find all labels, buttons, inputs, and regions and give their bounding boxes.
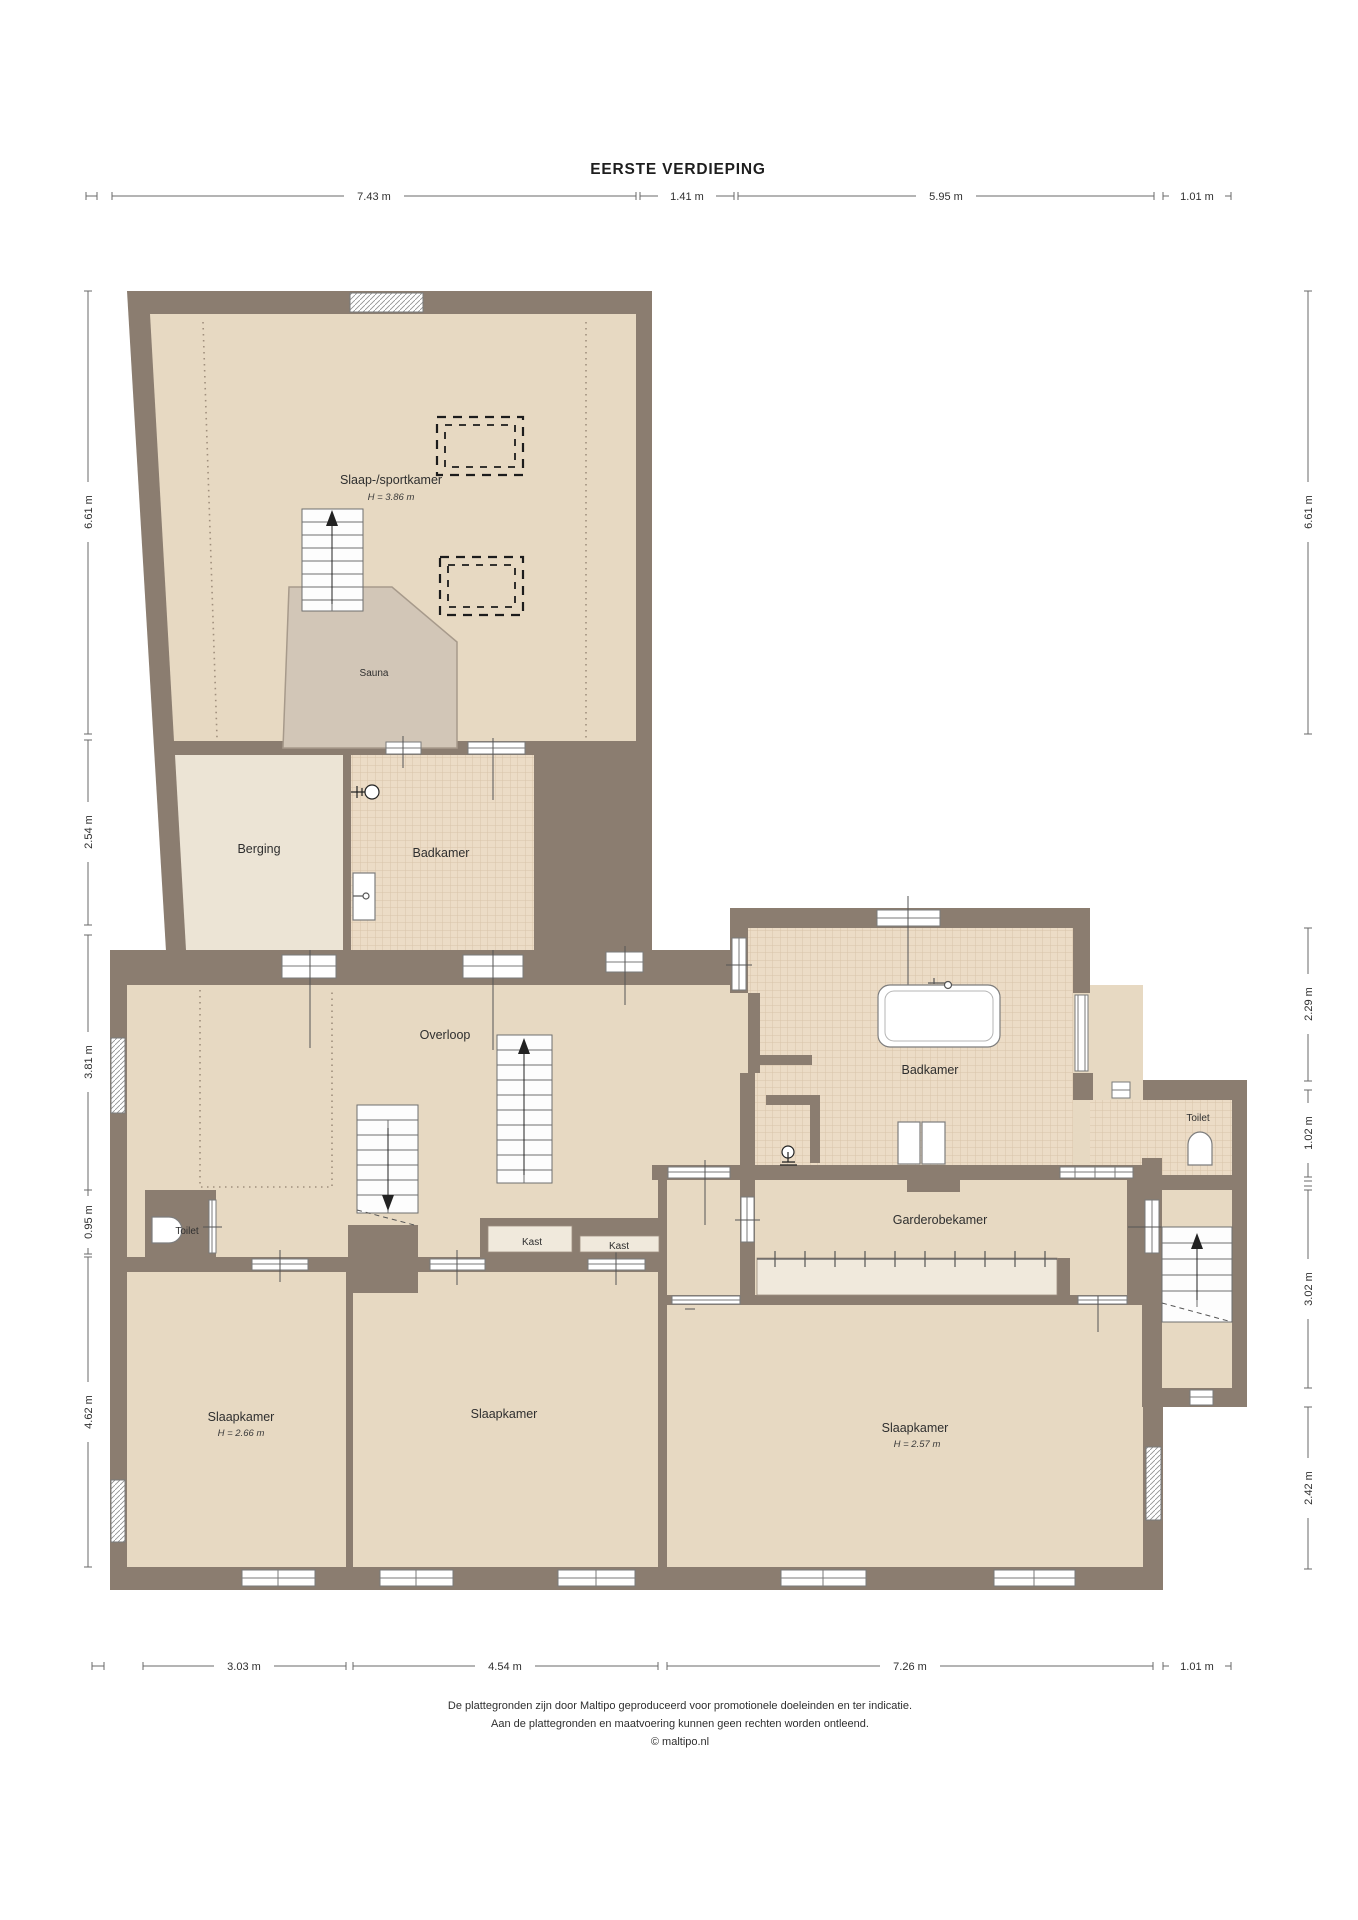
room-label-slaapkamer2: Slaapkamer — [471, 1407, 538, 1421]
dim-left-4: 0.95 m — [83, 1205, 95, 1239]
dim-right-1: 6.61 m — [1303, 495, 1315, 529]
room-label-sauna: Sauna — [360, 668, 389, 679]
washbasin2-icon — [922, 1122, 945, 1164]
stairs-right-icon — [1162, 1227, 1232, 1322]
dim-top-3: 5.95 m — [929, 191, 963, 203]
floorplan-page: EERSTE VERDIEPING — [0, 0, 1358, 1920]
stairs-sportkamer-icon — [302, 509, 363, 611]
dim-top-1: 7.43 m — [357, 191, 391, 203]
bathtub-icon — [878, 978, 1000, 1047]
room-label-sportkamer: Slaap-/sportkamer — [340, 473, 442, 487]
room-label-toilet-links: Toilet — [175, 1226, 199, 1237]
footer: De plattegronden zijn door Maltipo gepro… — [448, 1700, 912, 1748]
room-label-slaapkamer3: Slaapkamer — [882, 1421, 949, 1435]
dim-bottom-1: 3.03 m — [227, 1661, 261, 1673]
room-label-garderobekamer: Garderobekamer — [893, 1213, 988, 1227]
room-label-kast1: Kast — [522, 1237, 542, 1248]
toilet-rechts-icon — [1188, 1132, 1212, 1165]
footer-line-3: © maltipo.nl — [651, 1736, 709, 1748]
wardrobe-closet — [757, 1258, 1057, 1295]
washbasin-icon — [898, 1122, 920, 1164]
page-title: EERSTE VERDIEPING — [590, 161, 766, 178]
footer-line-2: Aan de plattegronden en maatvoering kunn… — [491, 1718, 869, 1730]
room-label-slaapkamer1: Slaapkamer — [208, 1410, 275, 1424]
window-left2-icon — [111, 1480, 125, 1542]
room-label-badkamer-boven: Badkamer — [413, 846, 470, 860]
room-label-berging: Berging — [237, 842, 280, 856]
room-label-toilet-rechts: Toilet — [1186, 1113, 1210, 1124]
room-height-slaapkamer3: H = 2.57 m — [894, 1439, 941, 1450]
room-height-slaapkamer1: H = 2.66 m — [218, 1428, 265, 1439]
dim-right-4: 3.02 m — [1303, 1272, 1315, 1306]
dim-left-1: 6.61 m — [83, 495, 95, 529]
footer-line-1: De plattegronden zijn door Maltipo gepro… — [448, 1700, 912, 1712]
dim-right-3: 1.02 m — [1303, 1116, 1315, 1150]
window-top-icon — [350, 293, 423, 312]
stairs-overloop-up-icon — [497, 1035, 552, 1183]
dim-left-5: 4.62 m — [83, 1395, 95, 1429]
floors — [127, 314, 1232, 1567]
room-label-kast2: Kast — [609, 1241, 629, 1252]
window-left-icon — [111, 1038, 125, 1113]
dim-right-5: 2.42 m — [1303, 1471, 1315, 1505]
dim-top-4: 1.01 m — [1180, 191, 1214, 203]
room-label-overloop: Overloop — [420, 1028, 471, 1042]
room-label-badkamer: Badkamer — [902, 1063, 959, 1077]
dim-left-3: 3.81 m — [83, 1045, 95, 1079]
dim-right-2: 2.29 m — [1303, 987, 1315, 1021]
dim-bottom-2: 4.54 m — [488, 1661, 522, 1673]
dim-bottom-3: 7.26 m — [893, 1661, 927, 1673]
stairs-overloop-down-icon — [357, 1105, 418, 1226]
washbasin-boven-icon — [353, 873, 375, 920]
room-height-sportkamer: H = 3.86 m — [368, 492, 415, 503]
dim-bottom-4: 1.01 m — [1180, 1661, 1214, 1673]
dim-top-2: 1.41 m — [670, 191, 704, 203]
dim-left-2: 2.54 m — [83, 815, 95, 849]
floorplan-svg: EERSTE VERDIEPING — [0, 0, 1358, 1920]
window-right-icon — [1146, 1447, 1161, 1520]
